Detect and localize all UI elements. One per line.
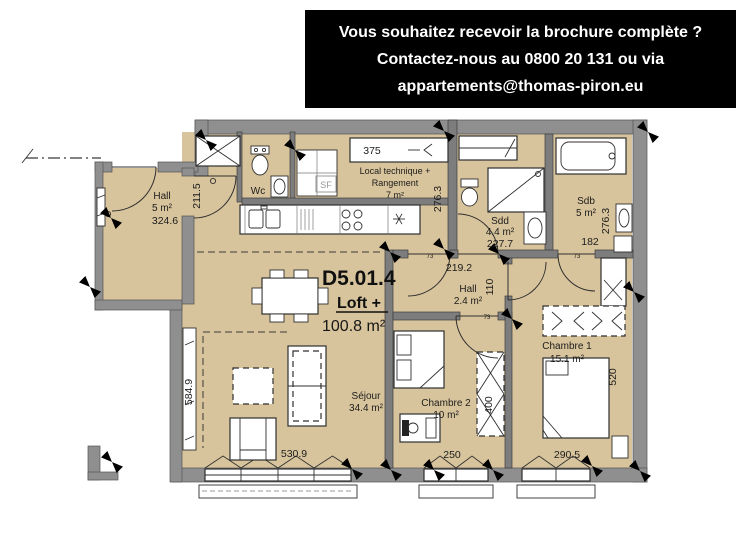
bedroom2-area: 10 m² (433, 410, 459, 421)
living-room-area: 34.4 m² (349, 403, 384, 414)
duct-shaft (601, 258, 626, 306)
wc-name: Wc (251, 186, 265, 197)
shower-room-area: 4.4 m² (486, 227, 515, 238)
technical-area: 7 m² (386, 190, 404, 200)
banner-line-2: Contactez-nous au 0800 20 131 ou via (377, 46, 664, 73)
shower-tray (488, 168, 544, 212)
dim-bedroom2-width: 250 (443, 449, 461, 461)
dining-table (252, 270, 328, 322)
shower-room-washbasin (524, 212, 546, 244)
shower-room-name: Sdd (491, 216, 509, 227)
bathroom-cabinet (614, 236, 632, 252)
brochure-page: Hall 5 m² 324.6 211.5 Wc 375 Local techn… (0, 0, 736, 552)
dim-technical-closet: 375 (363, 145, 381, 157)
bedroom2-wardrobe (477, 352, 504, 436)
dim-door-c: 73 (574, 254, 581, 260)
bedroom2-bed (394, 331, 444, 388)
dim-bedroom1-depth: 520 (607, 368, 619, 386)
boundary-tick (22, 149, 33, 163)
dim-living-room-width: 530.9 (281, 448, 307, 460)
dim-bedroom1-width: 290.5 (554, 449, 580, 461)
contact-banner: Vous souhaitez recevoir la brochure comp… (305, 10, 736, 108)
bathroom-area: 5 m² (576, 208, 597, 219)
bedroom1-wardrobe (543, 306, 625, 336)
shower-room-toilet (461, 179, 478, 206)
dim-bathroom-width: 182 (581, 236, 599, 248)
banner-line-3: appartements@thomas-piron.eu (398, 73, 644, 100)
dim-shower-room-width: 227.7 (487, 238, 513, 250)
wc-washbasin (271, 176, 288, 197)
wc-toilet (251, 146, 269, 175)
unit-total-area: 100.8 m² (322, 318, 386, 335)
dim-entrance-hall-depth: 211.5 (191, 183, 203, 209)
radiator-hall (97, 188, 105, 226)
dim-door-a: 73 (427, 254, 434, 260)
banner-line-1: Vous souhaitez recevoir la brochure comp… (339, 19, 702, 46)
technical-name-line1: Local technique + (360, 166, 431, 176)
dim-entrance-hall-width: 324.6 (152, 215, 178, 227)
bathroom-washbasin (616, 204, 632, 232)
kitchen-counter (240, 205, 420, 234)
unit-code: D5.01.4 (322, 267, 396, 290)
ventilation-label: SF (320, 180, 332, 190)
dim-technical-depth: 276.3 (432, 186, 444, 212)
entrance-hall-name: Hall (153, 191, 170, 202)
armchair (230, 418, 276, 460)
entrance-hall-area: 5 m² (152, 203, 173, 214)
bedroom1-area: 15.1 m² (550, 354, 585, 365)
technical-name-line2: Rangement (372, 178, 419, 188)
coffee-table (233, 368, 273, 404)
inner-hall-name: Hall (459, 284, 476, 295)
bathroom-name: Sdb (577, 196, 595, 207)
vestibule-shaft (196, 136, 240, 166)
dim-inner-hall-depth: 110 (484, 278, 496, 295)
dim-bedroom2-wardrobe: 400 (483, 396, 495, 414)
dim-bathroom-depth: 276.3 (600, 208, 612, 234)
dim-door-b: 73 (484, 315, 491, 321)
sofa (288, 346, 326, 426)
unit-type: Loft + (337, 295, 381, 312)
living-room-name: Séjour (352, 391, 382, 402)
inner-hall-area: 2.4 m² (454, 296, 483, 307)
dim-inner-hall-width: 219.2 (446, 262, 472, 274)
entrance-hall-floor (103, 168, 189, 304)
bathtub (556, 138, 626, 174)
bedroom2-name: Chambre 2 (421, 398, 471, 409)
dim-living-room-depth: 584.9 (183, 379, 195, 405)
bedroom1-name: Chambre 1 (542, 341, 592, 352)
